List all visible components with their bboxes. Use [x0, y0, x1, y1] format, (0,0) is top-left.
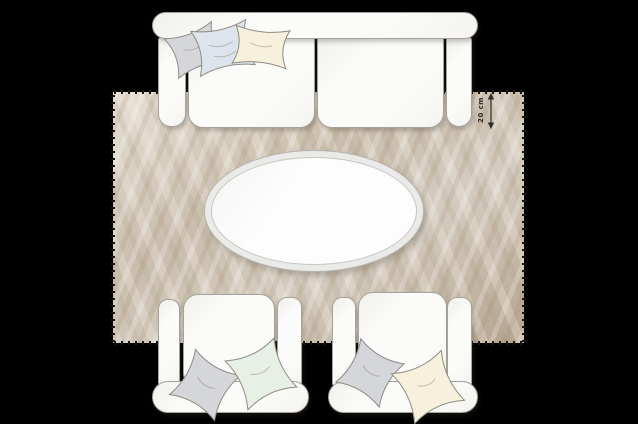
- sofa-pillow-cream: [232, 25, 290, 68]
- sofa-seat-cushion-right: [317, 37, 444, 128]
- floor-plan: 20 cm: [0, 0, 638, 424]
- armchair-right-pillow-gray: [336, 339, 404, 407]
- armchair-right-pillow-cream: [391, 350, 464, 423]
- armchair-right-pillows: [340, 342, 470, 422]
- armchair-left-pillow-green: [225, 338, 297, 410]
- sofa-armrest-right: [446, 37, 472, 127]
- sofa-pillows: [163, 14, 295, 80]
- dimension-arrow-icon: [486, 93, 496, 129]
- armchair-left-pillows: [168, 342, 298, 420]
- rug-fringe-right: [522, 93, 526, 342]
- dimension-label: 20 cm: [475, 93, 487, 127]
- rug-fringe-left: [111, 93, 115, 342]
- coffee-table: [204, 150, 424, 272]
- coffee-table-top: [211, 157, 417, 265]
